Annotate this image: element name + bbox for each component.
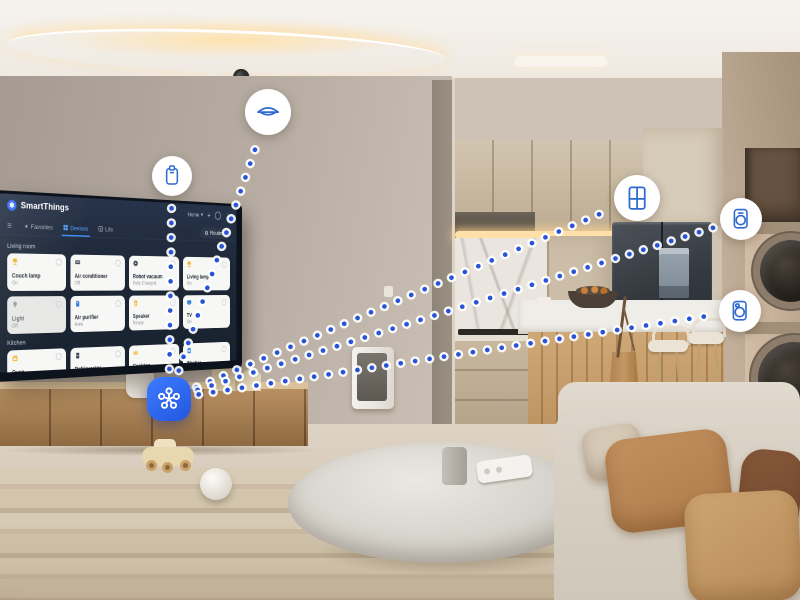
ceiling-light-icon	[245, 89, 291, 135]
device-tile[interactable]: Air conditioner Off	[70, 254, 124, 290]
washer-icon	[720, 198, 762, 240]
tile-status: Ready	[133, 319, 176, 325]
device-tile[interactable]: Air purifier Auto	[70, 296, 124, 333]
tile-name: Refrigerator	[75, 364, 121, 373]
cooktop-icon	[133, 349, 138, 358]
purifier-icon	[75, 300, 81, 310]
tile-status: Auto	[75, 321, 121, 328]
tile-name: Light	[12, 314, 62, 322]
device-tile[interactable]: Living lamp On	[183, 257, 230, 291]
devices-icon	[63, 225, 68, 231]
tile-status: Off	[12, 322, 62, 329]
lamp-icon	[12, 258, 18, 268]
tile-name: TV	[187, 311, 227, 318]
power-icon[interactable]	[222, 261, 227, 268]
device-sections: Living room Couch lamp On Air conditione…	[0, 235, 236, 373]
power-icon[interactable]	[115, 260, 121, 267]
add-icon[interactable]: +	[207, 211, 210, 219]
tile-name: Living lamp	[187, 274, 227, 280]
life-icon	[98, 226, 103, 232]
app-title: SmartThings	[21, 200, 69, 213]
ac-icon	[75, 259, 81, 269]
tile-name: Speaker	[133, 312, 176, 319]
star-icon: ★	[24, 223, 28, 230]
air-purifier-icon	[152, 156, 192, 196]
tile-name: Air purifier	[75, 313, 121, 320]
power-icon[interactable]	[170, 299, 175, 306]
gear-icon: ⚙	[205, 229, 209, 236]
hallway-recess	[432, 80, 454, 432]
refrigerator-icon	[614, 175, 660, 221]
device-tile[interactable]: Couch lamp On	[7, 253, 66, 291]
tile-status: Fully Charged	[133, 280, 176, 286]
power-icon[interactable]	[56, 259, 62, 266]
tab-devices[interactable]: Devices	[63, 219, 88, 237]
air-purifier-appliance	[352, 347, 394, 409]
speaker-icon	[133, 300, 138, 309]
oven-icon	[12, 355, 18, 365]
washer-icon	[187, 347, 192, 356]
device-tile[interactable]: Refrigerator	[70, 346, 124, 373]
tile-name: Air conditioner	[75, 273, 121, 280]
wall-tv: ✱ SmartThings Home ▾ + ⋮ ≡ ★FavoritesDe	[0, 190, 242, 382]
device-tile[interactable]: Light Off	[7, 296, 66, 334]
ceiling-light-panel	[515, 56, 607, 67]
tile-name: Cooktop	[133, 361, 176, 370]
tile-status: On	[187, 281, 227, 286]
tile-status: On	[187, 318, 227, 324]
tile-status: Off	[75, 280, 121, 286]
power-icon[interactable]	[222, 346, 227, 353]
smartthings-logo-icon: ✱	[7, 200, 16, 211]
tv-icon	[187, 299, 192, 308]
fridge-icon	[75, 352, 81, 362]
tile-name: Couch lamp	[12, 272, 62, 279]
lamp-icon	[187, 261, 192, 270]
tile-name: Robot vacuum	[133, 273, 176, 280]
tile-status	[75, 371, 121, 373]
power-icon[interactable]	[115, 350, 121, 357]
routines-button[interactable]: ⚙ Routines	[201, 227, 230, 239]
tile-name: Oven	[12, 367, 62, 373]
power-icon[interactable]	[56, 353, 62, 360]
cup	[537, 297, 551, 312]
device-tile[interactable]: Speaker Ready	[129, 295, 179, 330]
dryer-icon	[719, 290, 761, 332]
tile-name: Washer	[187, 358, 227, 366]
chevron-down-icon: ▾	[201, 211, 203, 218]
refrigerator-screen	[659, 248, 689, 298]
power-icon[interactable]	[170, 348, 175, 355]
smartthings-dashboard: ✱ SmartThings Home ▾ + ⋮ ≡ ★FavoritesDe	[0, 193, 236, 373]
smart-home-scene: ✱ SmartThings Home ▾ + ⋮ ≡ ★FavoritesDe	[0, 0, 800, 600]
round-stone-table	[288, 443, 594, 563]
device-tile[interactable]: Oven	[7, 348, 66, 373]
more-menu-icon[interactable]: ⋮	[225, 212, 230, 220]
avatar[interactable]	[215, 211, 221, 220]
tab-favorites[interactable]: ★Favorites	[24, 217, 52, 236]
power-icon[interactable]	[170, 261, 175, 268]
power-icon[interactable]	[115, 300, 121, 307]
wall-switch	[384, 286, 393, 297]
bulb-icon	[12, 301, 18, 311]
device-tile[interactable]: TV On	[183, 295, 230, 329]
power-icon[interactable]	[222, 299, 227, 306]
device-tile[interactable]: Cooktop	[129, 344, 179, 373]
toy-ball	[200, 468, 232, 500]
menu-icon[interactable]: ≡	[7, 220, 11, 231]
home-selector[interactable]: Home ▾	[188, 210, 203, 218]
device-tile[interactable]: Washer	[183, 342, 230, 373]
section-title: Living room	[7, 242, 230, 254]
device-tile[interactable]: Robot vacuum Fully Charged	[129, 256, 179, 291]
smartthings-hub-icon	[147, 377, 191, 421]
tile-status: On	[12, 280, 62, 286]
tab-life[interactable]: Life	[98, 220, 113, 237]
sofa-pillow	[683, 489, 800, 600]
vacuum-icon	[133, 260, 138, 269]
power-icon[interactable]	[56, 300, 62, 307]
vase	[442, 447, 467, 485]
